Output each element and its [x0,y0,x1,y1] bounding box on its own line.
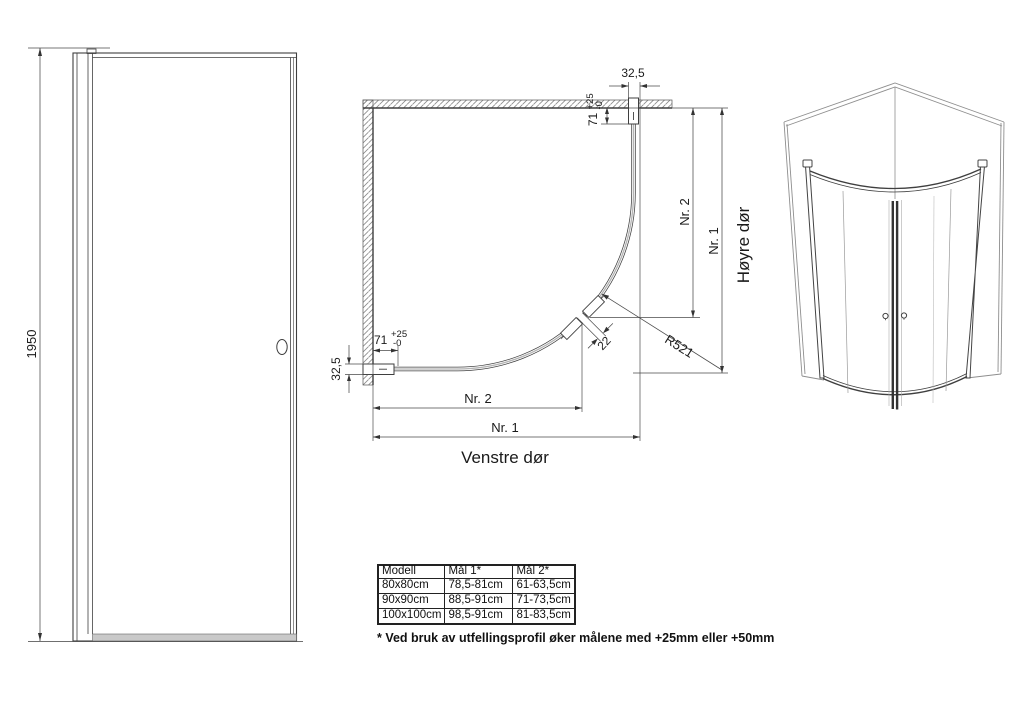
bottom-outer-dim-label: Nr. 1 [491,420,518,435]
height-dim-label: 1950 [24,330,39,359]
side-view [28,48,303,642]
cell-dim2: 71-73,5cm [513,594,575,609]
top-offset-dim-label: 71 +25 -0 [585,93,605,126]
footnote: * Ved bruk av utfellingsprofil øker måle… [377,631,774,645]
left-wall-profile [363,364,394,375]
iso-view [784,83,1004,410]
threshold-rail [93,634,297,641]
side-door-panel [73,53,297,641]
door-split-profile-lower [561,318,583,340]
right-outer-dim-label: Nr. 1 [706,227,721,254]
table-row: 90x90cm 88,5-91cm 71-73,5cm [378,594,575,609]
cell-dim1: 78,5-81cm [445,579,513,594]
height-dimension [28,48,110,641]
svg-text:-0: -0 [393,338,401,349]
radius-label: R521 [662,332,696,361]
svg-text:-0: -0 [594,101,605,109]
gap-dim-label: 22 [594,333,614,353]
iso-left-stile [892,201,894,409]
cell-dim1: 88,5-91cm [445,594,513,609]
table-row: 100x100cm 98,5-91cm 81-83,5cm [378,609,575,625]
left-offset-dim-label: 71 +25 -0 [374,329,407,349]
bottom-inner-dim-label: Nr. 2 [464,391,491,406]
iso-right-knob [901,313,906,318]
cell-dim1: 98,5-91cm [445,609,513,625]
left-width-dim-label: 32,5 [329,357,343,381]
table-header-row: Modell Mål 1* Mål 2* [378,565,575,579]
wall-left [363,100,373,385]
top-width-dim-label: 32,5 [621,66,645,80]
table-row: 80x80cm 78,5-81cm 61-63,5cm [378,579,575,594]
svg-text:71: 71 [374,333,388,347]
col-header-model: Modell [378,565,445,579]
cell-model: 90x90cm [378,594,445,609]
size-table: Modell Mål 1* Mål 2* 80x80cm 78,5-81cm 6… [377,564,576,625]
door-split-profile-upper [583,296,605,318]
right-inner-dim-label: Nr. 2 [677,198,692,225]
glass-curve [394,124,634,369]
cell-dim2: 81-83,5cm [513,609,575,625]
iso-left-knob [883,313,888,318]
iso-top-rail [810,169,981,189]
cell-model: 100x100cm [378,609,445,625]
right-door-label: Høyre dør [734,206,753,283]
svg-text:71: 71 [586,113,600,127]
plan-arrows [347,84,724,439]
technical-drawing-page: 1950 [0,0,1024,724]
plan-view [345,82,728,441]
col-header-dim1: Mål 1* [445,565,513,579]
top-wall-profile [629,98,639,124]
col-header-dim2: Mål 2* [513,565,575,579]
cell-dim2: 61-63,5cm [513,579,575,594]
door-knob [277,340,287,355]
wall-top [363,100,672,108]
cell-model: 80x80cm [378,579,445,594]
iso-right-stile [896,201,898,410]
left-door-label: Venstre dør [461,448,549,467]
plan-dimensions [345,82,728,441]
